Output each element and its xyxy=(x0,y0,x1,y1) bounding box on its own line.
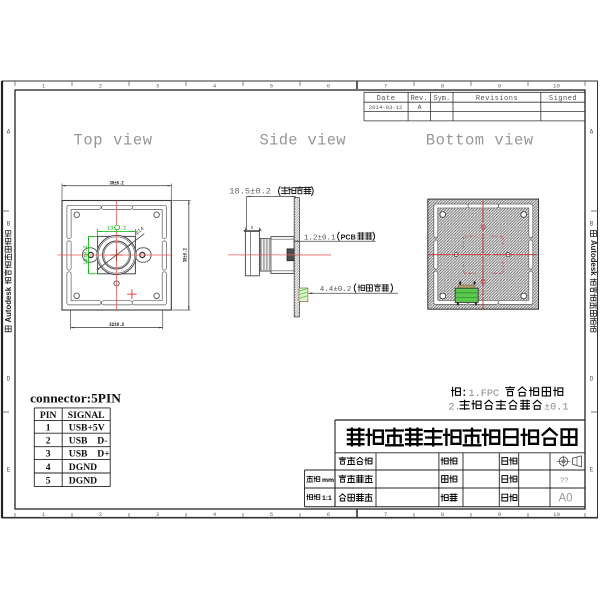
svg-text:PIN: PIN xyxy=(40,410,57,421)
svg-text:5: 5 xyxy=(270,511,274,518)
svg-text:D-: D- xyxy=(97,436,107,447)
svg-text:8: 8 xyxy=(441,511,445,518)
svg-text:10: 10 xyxy=(553,511,560,518)
svg-text:3: 3 xyxy=(156,511,160,518)
svg-text:A: A xyxy=(418,104,422,111)
svg-text:2.: 2. xyxy=(448,402,460,413)
svg-text:38±0.2: 38±0.2 xyxy=(182,248,188,262)
svg-text:1: 1 xyxy=(42,82,46,89)
svg-text:??: ?? xyxy=(560,477,568,485)
svg-text:1: 1 xyxy=(42,511,46,518)
svg-text:connector:5PIN: connector:5PIN xyxy=(30,391,121,405)
svg-text:4.4±0.2: 4.4±0.2 xyxy=(320,286,352,294)
svg-text:4: 4 xyxy=(213,82,217,89)
svg-text:E: E xyxy=(7,467,11,474)
svg-text:2: 2 xyxy=(99,511,103,518)
svg-text:3: 3 xyxy=(156,82,160,89)
svg-text:1.2±0.1: 1.2±0.1 xyxy=(304,234,336,242)
svg-text:±0.1: ±0.1 xyxy=(544,402,568,413)
svg-text:8: 8 xyxy=(441,82,445,89)
svg-text:D+: D+ xyxy=(97,449,109,460)
svg-text:USB: USB xyxy=(69,436,88,447)
svg-text:B: B xyxy=(7,221,11,228)
svg-text:32±0.2: 32±0.2 xyxy=(109,322,124,328)
svg-text:6: 6 xyxy=(327,511,331,518)
svg-text:B: B xyxy=(590,221,594,228)
svg-text:7: 7 xyxy=(384,82,388,89)
svg-text:A0: A0 xyxy=(559,493,573,505)
svg-text:Bottom view: Bottom view xyxy=(426,132,534,150)
svg-text:Signed: Signed xyxy=(549,95,577,103)
svg-text:18.5±0.2: 18.5±0.2 xyxy=(229,187,271,197)
svg-text:1.FPC: 1.FPC xyxy=(469,389,500,400)
svg-text:E: E xyxy=(590,467,594,474)
svg-text:3: 3 xyxy=(46,449,51,460)
svg-text:2014-03-12: 2014-03-12 xyxy=(369,104,403,111)
svg-text:USB+5V: USB+5V xyxy=(69,423,105,434)
svg-text:D: D xyxy=(590,376,594,383)
svg-text:PCB: PCB xyxy=(341,232,356,241)
svg-text:6: 6 xyxy=(327,82,331,89)
svg-text:10: 10 xyxy=(553,82,560,89)
svg-text:4: 4 xyxy=(46,462,51,473)
svg-text:USB: USB xyxy=(69,449,88,460)
svg-text:Date: Date xyxy=(377,95,396,103)
svg-text:2: 2 xyxy=(46,436,51,447)
svg-text:7: 7 xyxy=(384,511,388,518)
svg-text:mm: mm xyxy=(322,477,334,484)
svg-text:5: 5 xyxy=(251,225,254,231)
svg-text:Autodesk: Autodesk xyxy=(4,286,13,322)
svg-text:1:1: 1:1 xyxy=(322,495,332,502)
svg-text:D: D xyxy=(7,376,11,383)
svg-text:Sym.: Sym. xyxy=(433,95,450,103)
svg-text:DGND: DGND xyxy=(69,462,97,473)
svg-text:SIGNAL: SIGNAL xyxy=(68,410,105,421)
svg-text:13±0.2: 13±0.2 xyxy=(83,245,89,264)
svg-text:DGND: DGND xyxy=(69,476,97,487)
svg-text:A: A xyxy=(590,129,594,136)
svg-text:5: 5 xyxy=(46,476,51,487)
svg-text:Revisions: Revisions xyxy=(476,95,518,103)
svg-text:9: 9 xyxy=(498,511,502,518)
svg-text:Side view: Side view xyxy=(260,132,347,150)
svg-text:2: 2 xyxy=(99,82,103,89)
svg-text:Autodesk: Autodesk xyxy=(589,240,598,276)
svg-text:4: 4 xyxy=(213,511,217,518)
svg-text:1: 1 xyxy=(46,423,51,434)
svg-text:Rev.: Rev. xyxy=(411,95,428,103)
svg-text:9: 9 xyxy=(498,82,502,89)
svg-text:A: A xyxy=(7,129,11,136)
svg-text:5: 5 xyxy=(270,82,274,89)
svg-text:Top view: Top view xyxy=(74,132,153,150)
svg-text:38±0.2: 38±0.2 xyxy=(110,180,124,186)
